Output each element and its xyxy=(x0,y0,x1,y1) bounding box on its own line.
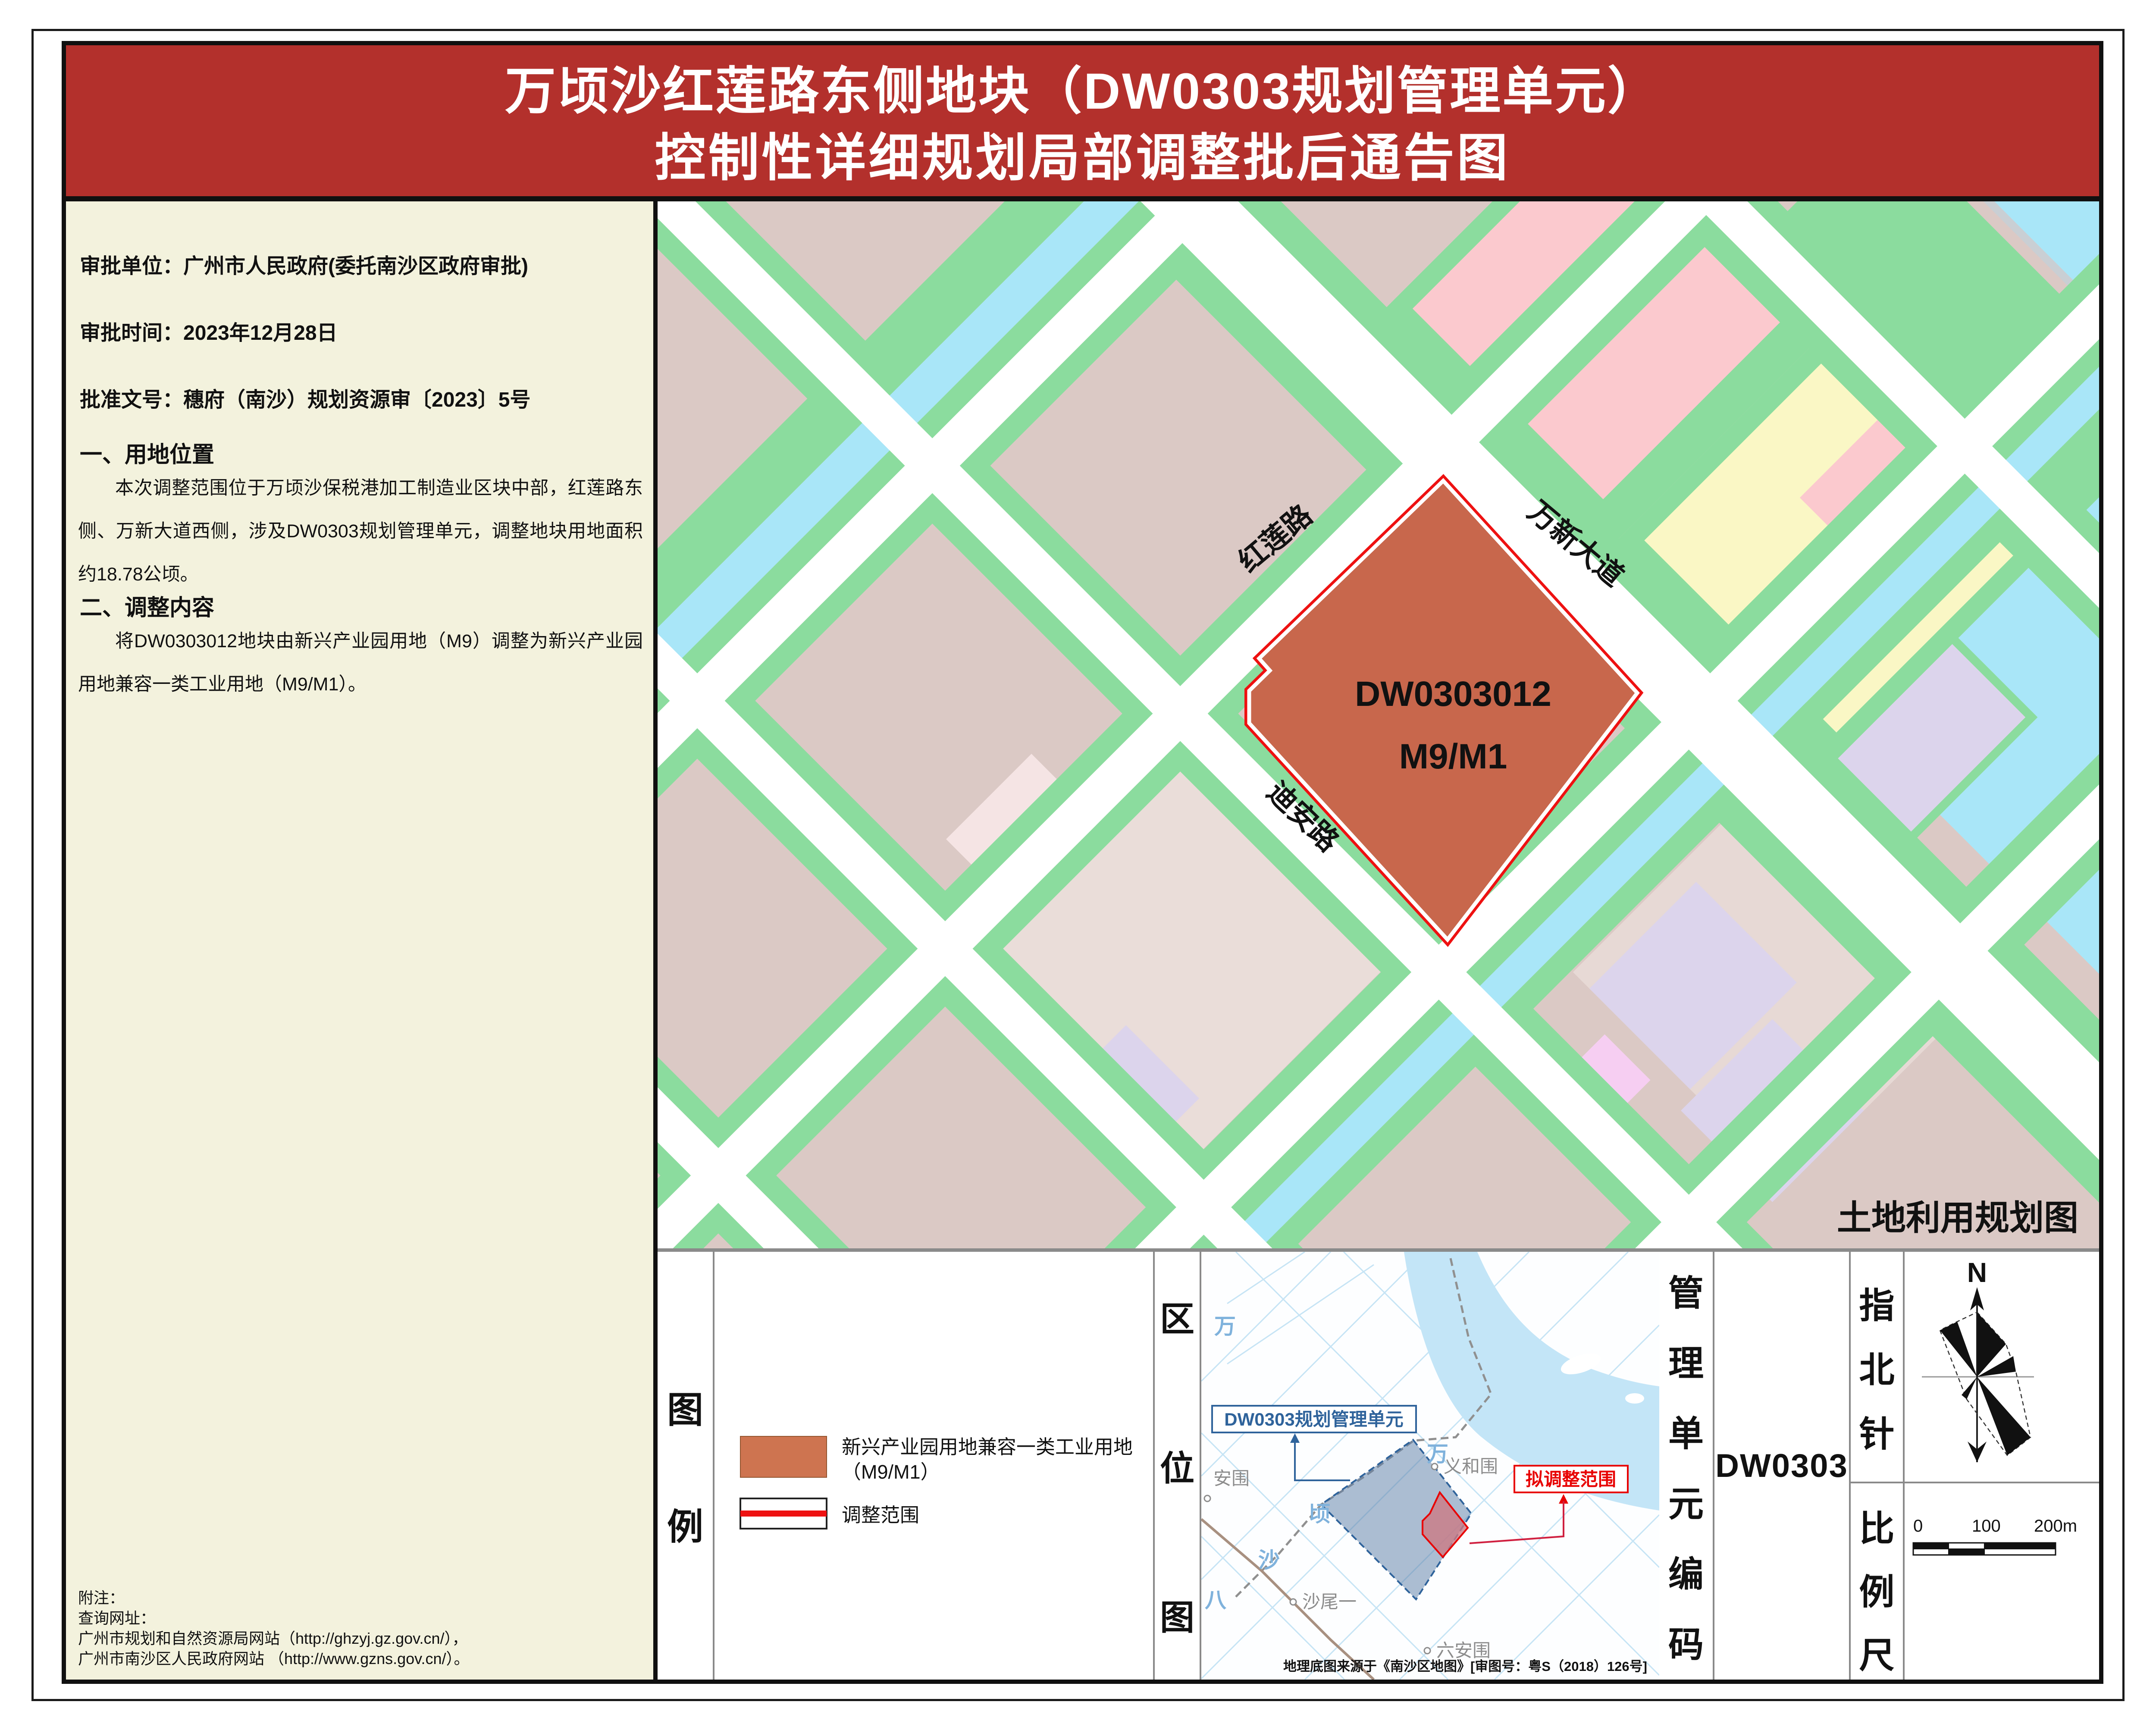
parcel-use-label: M9/M1 xyxy=(1399,737,1507,776)
svg-text:万: 万 xyxy=(1214,1314,1236,1338)
page-title-line2: 控制性详细规划局部调整批后通告图 xyxy=(66,124,2099,193)
announcement-sheet: 万顷沙红莲路东侧地块（DW0303规划管理单元） 控制性详细规划局部调整批后通告… xyxy=(0,0,2156,1730)
svg-text:沙: 沙 xyxy=(1258,1548,1280,1572)
scale-bar: 0 100 200m xyxy=(1905,1483,2087,1678)
svg-text:八: 八 xyxy=(1205,1588,1227,1612)
furniture-graphics-column: N 0 10 xyxy=(1905,1252,2099,1680)
footnote-url-title: 查询网址： xyxy=(78,1608,647,1628)
footnotes: 附注： 查询网址： 广州市规划和自然资源局网站（http://ghzyj.gz.… xyxy=(78,1588,647,1669)
scale-label: 比例尺 xyxy=(1851,1483,1903,1680)
locmap-label-column: 区位图 xyxy=(1155,1252,1201,1680)
page-title-line1: 万顷沙红莲路东侧地块（DW0303规划管理单元） xyxy=(66,59,2099,124)
approval-doc: 批准文号：穗府（南沙）规划资源审〔2023〕5号 xyxy=(80,382,640,413)
approval-unit: 审批单位：广州市人民政府(委托南沙区政府审批) xyxy=(80,249,640,279)
unitcode-label: 管理单元编码 xyxy=(1659,1252,1713,1680)
unitcode-label-column: 管理单元编码 xyxy=(1659,1252,1714,1680)
header-banner: 万顷沙红莲路东侧地块（DW0303规划管理单元） 控制性详细规划局部调整批后通告… xyxy=(66,45,2099,201)
legend-swatch-m9m1 xyxy=(740,1436,827,1477)
compass-north-letter: N xyxy=(1967,1257,1987,1288)
scale-tick-0: 0 xyxy=(1913,1517,1923,1536)
unitcode-value: DW0303 xyxy=(1714,1252,1849,1680)
footnote-title: 附注： xyxy=(78,1588,647,1608)
approval-time: 审批时间：2023年12月28日 xyxy=(80,316,640,346)
section1-title: 一、用地位置 xyxy=(80,436,640,469)
content-frame: 万顷沙红莲路东侧地块（DW0303规划管理单元） 控制性详细规划局部调整批后通告… xyxy=(62,41,2103,1684)
footnote-site1: 广州市规划和自然资源局网站（http://ghzyj.gz.gov.cn/）， xyxy=(78,1628,647,1649)
location-map: DW0303规划管理单元 拟调整范围 万 顷 沙 万 八 xyxy=(1201,1252,1659,1680)
scale-label-cell: 比例尺 xyxy=(1851,1483,1903,1680)
footnote-site2: 广州市南沙区人民政府网站 （http://www.gzns.gov.cn/）。 xyxy=(78,1649,647,1669)
locmap-adjust-label: 拟调整范围 xyxy=(1526,1469,1616,1489)
svg-text:沙尾一: 沙尾一 xyxy=(1302,1592,1357,1612)
landuse-map: DW0303012 M9/M1 红莲路 万新大道 迪安路 土地利用规划图 xyxy=(658,201,2099,1248)
landuse-map-canvas: DW0303012 M9/M1 红莲路 万新大道 迪安路 土地利用规划图 xyxy=(658,201,2099,1248)
svg-text:顷: 顷 xyxy=(1309,1502,1330,1526)
compass-cell: N xyxy=(1905,1252,2099,1483)
map-caption: 土地利用规划图 xyxy=(1837,1199,2078,1237)
legend-item2-label: 调整范围 xyxy=(842,1503,919,1527)
legend-content: 新兴产业园用地兼容一类工业用地 （M9/M1） 调整范围 xyxy=(714,1252,1155,1680)
svg-text:六安围: 六安围 xyxy=(1436,1640,1491,1661)
section2-title: 二、调整内容 xyxy=(80,589,640,622)
locmap-source-note: 地理底图来源于《南沙区地图》[审图号：粤S（2018）126号] xyxy=(1283,1659,1647,1674)
legend-label-column: 图例 xyxy=(658,1252,714,1680)
location-map-canvas: DW0303规划管理单元 拟调整范围 万 顷 沙 万 八 xyxy=(1201,1252,1659,1680)
section2-body: 将DW0303012地块由新兴产业园用地（M9）调整为新兴产业园用地兼容一类工业… xyxy=(78,620,643,706)
svg-text:安围: 安围 xyxy=(1213,1468,1250,1489)
bottom-strip: 图例 新兴产业园用地兼容一类工业用地 （M9/M1） 调整范围 区位图 xyxy=(658,1248,2099,1680)
section1-body: 本次调整范围位于万顷沙保税港加工制造业区块中部，红莲路东侧、万新大道西侧，涉及D… xyxy=(78,467,643,596)
scale-tick-100: 100 xyxy=(1972,1517,2001,1536)
legend-item1-line2: （M9/M1） xyxy=(842,1460,940,1484)
scale-cell: 0 100 200m xyxy=(1905,1483,2099,1680)
info-panel: 审批单位：广州市人民政府(委托南沙区政府审批) 审批时间：2023年12月28日… xyxy=(66,201,658,1680)
legend-item1-line1: 新兴产业园用地兼容一类工业用地 xyxy=(842,1435,1133,1459)
parcel-code-label: DW0303012 xyxy=(1355,674,1551,714)
unitcode-value-column: DW0303 xyxy=(1714,1252,1851,1680)
compass-label-cell: 指北针 xyxy=(1851,1252,1903,1483)
north-arrow-icon: N xyxy=(1905,1252,2087,1482)
legend-label: 图例 xyxy=(658,1252,713,1680)
svg-text:义和围: 义和围 xyxy=(1444,1456,1498,1476)
scale-tick-200: 200m xyxy=(2034,1517,2077,1536)
furniture-label-column: 指北针 比例尺 xyxy=(1851,1252,1905,1680)
locmap-label: 区位图 xyxy=(1155,1252,1200,1680)
locmap-unit-label: DW0303规划管理单元 xyxy=(1224,1409,1403,1429)
compass-label: 指北针 xyxy=(1851,1252,1903,1482)
